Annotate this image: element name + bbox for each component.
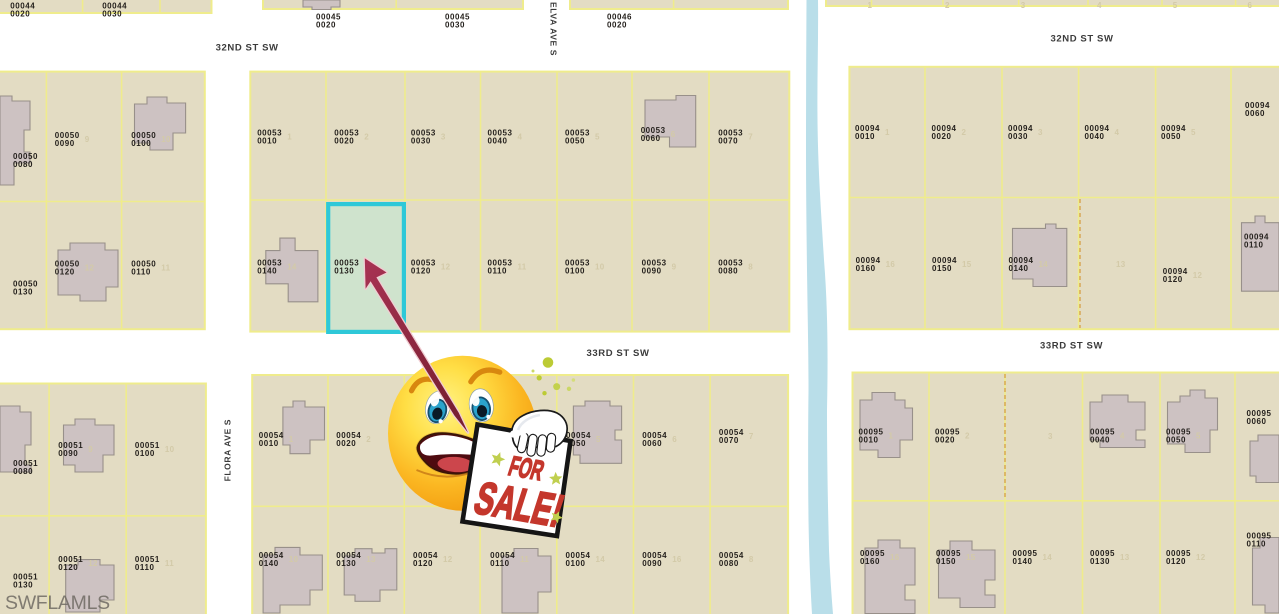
svg-text:5: 5 xyxy=(596,435,601,444)
svg-text:6: 6 xyxy=(1248,1,1253,10)
svg-text:0100: 0100 xyxy=(131,139,151,148)
svg-text:6: 6 xyxy=(671,130,676,139)
svg-text:0030: 0030 xyxy=(102,10,122,19)
svg-text:0020: 0020 xyxy=(316,21,336,30)
svg-text:3: 3 xyxy=(441,133,446,142)
svg-text:3: 3 xyxy=(1048,432,1053,441)
svg-text:1: 1 xyxy=(889,432,894,441)
svg-text:16: 16 xyxy=(886,260,896,269)
svg-text:0130: 0130 xyxy=(336,559,356,568)
svg-text:6: 6 xyxy=(672,435,677,444)
svg-text:5: 5 xyxy=(1196,432,1201,441)
svg-text:0110: 0110 xyxy=(1247,540,1267,549)
svg-text:0060: 0060 xyxy=(1245,109,1265,118)
svg-text:0100: 0100 xyxy=(566,559,586,568)
svg-text:9: 9 xyxy=(85,135,90,144)
svg-text:33RD ST SW: 33RD ST SW xyxy=(587,348,650,359)
svg-text:4: 4 xyxy=(1097,1,1102,10)
svg-text:0050: 0050 xyxy=(1161,132,1181,141)
svg-text:0080: 0080 xyxy=(718,267,738,276)
svg-text:0030: 0030 xyxy=(411,137,431,146)
svg-text:0020: 0020 xyxy=(935,436,955,445)
svg-text:16: 16 xyxy=(890,553,900,562)
svg-text:0130: 0130 xyxy=(13,581,33,590)
svg-text:0160: 0160 xyxy=(856,264,876,273)
svg-text:2: 2 xyxy=(945,1,950,10)
svg-text:14: 14 xyxy=(287,263,297,272)
svg-text:0060: 0060 xyxy=(1247,417,1267,426)
svg-text:11: 11 xyxy=(520,555,529,564)
svg-text:FLORA AVE S: FLORA AVE S xyxy=(223,419,233,481)
svg-text:0040: 0040 xyxy=(1085,132,1105,141)
svg-text:0090: 0090 xyxy=(642,267,662,276)
svg-text:10: 10 xyxy=(289,555,299,564)
svg-text:0130: 0130 xyxy=(13,287,33,296)
svg-text:0100: 0100 xyxy=(135,449,155,458)
svg-text:13: 13 xyxy=(1116,260,1126,269)
svg-text:0120: 0120 xyxy=(1163,275,1183,284)
svg-text:9: 9 xyxy=(88,445,93,454)
svg-text:15: 15 xyxy=(966,553,976,562)
svg-text:15: 15 xyxy=(962,260,972,269)
svg-text:4: 4 xyxy=(518,133,523,142)
svg-text:3: 3 xyxy=(1038,128,1043,137)
svg-text:2: 2 xyxy=(965,432,970,441)
svg-text:32ND ST SW: 32ND ST SW xyxy=(216,43,279,54)
svg-text:0060: 0060 xyxy=(641,134,661,143)
svg-text:12: 12 xyxy=(443,555,453,564)
svg-text:0080: 0080 xyxy=(719,559,739,568)
svg-text:14: 14 xyxy=(596,555,606,564)
svg-text:12: 12 xyxy=(1193,271,1203,280)
svg-text:10: 10 xyxy=(165,445,175,454)
svg-text:0040: 0040 xyxy=(1090,436,1110,445)
svg-text:0100: 0100 xyxy=(565,267,585,276)
svg-text:0010: 0010 xyxy=(259,439,279,448)
svg-text:0110: 0110 xyxy=(490,559,510,568)
svg-text:2: 2 xyxy=(366,435,371,444)
svg-text:1: 1 xyxy=(885,128,890,137)
svg-text:7: 7 xyxy=(748,133,753,142)
svg-text:0140: 0140 xyxy=(1013,557,1033,566)
svg-text:SWFLAMLS: SWFLAMLS xyxy=(5,592,110,614)
svg-text:0150: 0150 xyxy=(932,264,952,273)
svg-text:0130: 0130 xyxy=(334,267,354,276)
svg-text:10: 10 xyxy=(161,135,171,144)
svg-text:14: 14 xyxy=(1043,553,1053,562)
svg-text:0080: 0080 xyxy=(13,467,33,476)
svg-text:0140: 0140 xyxy=(259,559,279,568)
svg-text:3: 3 xyxy=(1021,1,1026,10)
svg-text:14: 14 xyxy=(1039,260,1049,269)
svg-text:11: 11 xyxy=(161,264,170,273)
svg-text:0020: 0020 xyxy=(932,132,952,141)
svg-text:0040: 0040 xyxy=(488,137,508,146)
svg-text:32ND ST SW: 32ND ST SW xyxy=(1051,33,1114,44)
svg-text:0020: 0020 xyxy=(607,21,627,30)
svg-text:0050: 0050 xyxy=(565,137,585,146)
svg-text:0120: 0120 xyxy=(55,268,75,277)
svg-text:0020: 0020 xyxy=(334,137,354,146)
svg-text:0090: 0090 xyxy=(642,559,662,568)
svg-text:8: 8 xyxy=(749,555,754,564)
svg-text:12: 12 xyxy=(441,263,451,272)
svg-text:0010: 0010 xyxy=(257,137,277,146)
svg-text:2: 2 xyxy=(364,133,369,142)
svg-text:13: 13 xyxy=(366,555,376,564)
svg-text:0050: 0050 xyxy=(1166,436,1186,445)
svg-text:0090: 0090 xyxy=(55,139,75,148)
svg-text:0160: 0160 xyxy=(860,557,880,566)
svg-text:9: 9 xyxy=(672,263,677,272)
svg-text:12: 12 xyxy=(88,559,98,568)
svg-text:0020: 0020 xyxy=(10,10,30,19)
svg-text:0150: 0150 xyxy=(936,557,956,566)
svg-text:0120: 0120 xyxy=(413,559,433,568)
svg-text:4: 4 xyxy=(1115,128,1120,137)
svg-text:0010: 0010 xyxy=(859,436,879,445)
svg-text:0090: 0090 xyxy=(58,449,78,458)
svg-text:8: 8 xyxy=(748,263,753,272)
svg-text:0110: 0110 xyxy=(135,563,155,572)
svg-text:0080: 0080 xyxy=(13,160,33,169)
svg-text:33RD ST SW: 33RD ST SW xyxy=(1040,341,1103,352)
svg-text:0030: 0030 xyxy=(445,21,465,30)
svg-text:5: 5 xyxy=(1173,1,1178,10)
svg-text:5: 5 xyxy=(595,133,600,142)
svg-text:0010: 0010 xyxy=(855,132,875,141)
svg-text:0110: 0110 xyxy=(488,267,508,276)
svg-text:0120: 0120 xyxy=(58,563,78,572)
svg-text:0060: 0060 xyxy=(642,439,662,448)
svg-text:0020: 0020 xyxy=(336,439,356,448)
svg-text:7: 7 xyxy=(749,432,754,441)
svg-text:5: 5 xyxy=(1191,128,1196,137)
svg-text:0110: 0110 xyxy=(131,268,151,277)
svg-text:0120: 0120 xyxy=(411,267,431,276)
svg-text:0110: 0110 xyxy=(1244,241,1264,250)
svg-text:11: 11 xyxy=(165,559,174,568)
svg-text:2: 2 xyxy=(962,128,967,137)
svg-text:0120: 0120 xyxy=(1166,557,1186,566)
svg-text:0140: 0140 xyxy=(257,267,277,276)
svg-text:12: 12 xyxy=(1196,553,1206,562)
svg-text:11: 11 xyxy=(518,263,527,272)
svg-text:4: 4 xyxy=(1120,432,1125,441)
svg-text:1: 1 xyxy=(289,435,294,444)
svg-text:0070: 0070 xyxy=(719,436,739,445)
svg-text:10: 10 xyxy=(595,263,605,272)
svg-text:0140: 0140 xyxy=(1009,264,1029,273)
svg-text:ELVA AVE S: ELVA AVE S xyxy=(549,2,559,56)
svg-text:1: 1 xyxy=(868,1,873,10)
svg-text:1: 1 xyxy=(287,133,292,142)
svg-text:0070: 0070 xyxy=(718,137,738,146)
svg-text:16: 16 xyxy=(672,555,682,564)
svg-text:0130: 0130 xyxy=(1090,557,1110,566)
svg-text:0030: 0030 xyxy=(1008,132,1028,141)
svg-text:13: 13 xyxy=(1120,553,1130,562)
svg-text:12: 12 xyxy=(85,264,95,273)
